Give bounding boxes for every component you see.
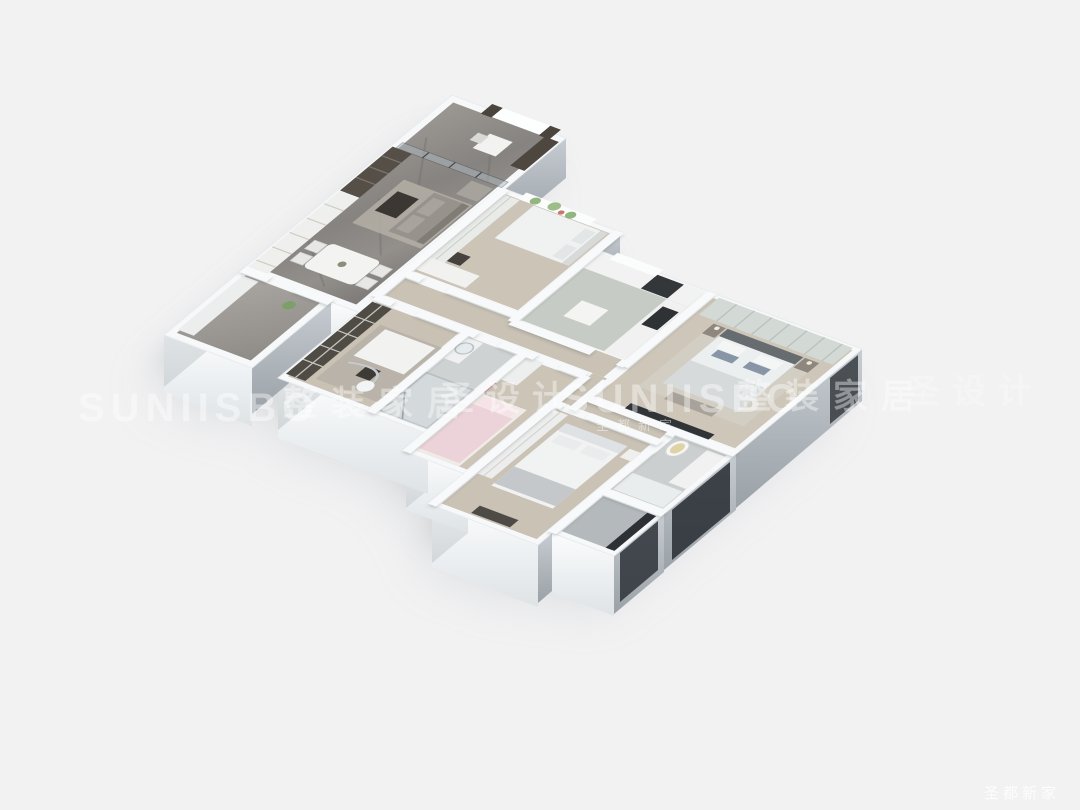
interior-plan <box>106 91 949 568</box>
watermark-home-right: 整装家居 <box>737 378 929 416</box>
watermark-design-right: 圣设计 <box>906 373 1044 411</box>
watermark-corner: 圣都新家 <box>984 785 1060 802</box>
watermark-design-left: 圣设计 <box>440 380 578 418</box>
render-canvas: SUNIISBO 整装家居 圣设计 SUNIISBO 圣都新家 整装家居 圣设计… <box>0 0 1080 810</box>
watermark-brand-sub: 圣都新家 <box>596 418 680 433</box>
floorplan-3d-scene: SUNIISBO 整装家居 圣设计 SUNIISBO 圣都新家 整装家居 圣设计… <box>0 0 1080 810</box>
